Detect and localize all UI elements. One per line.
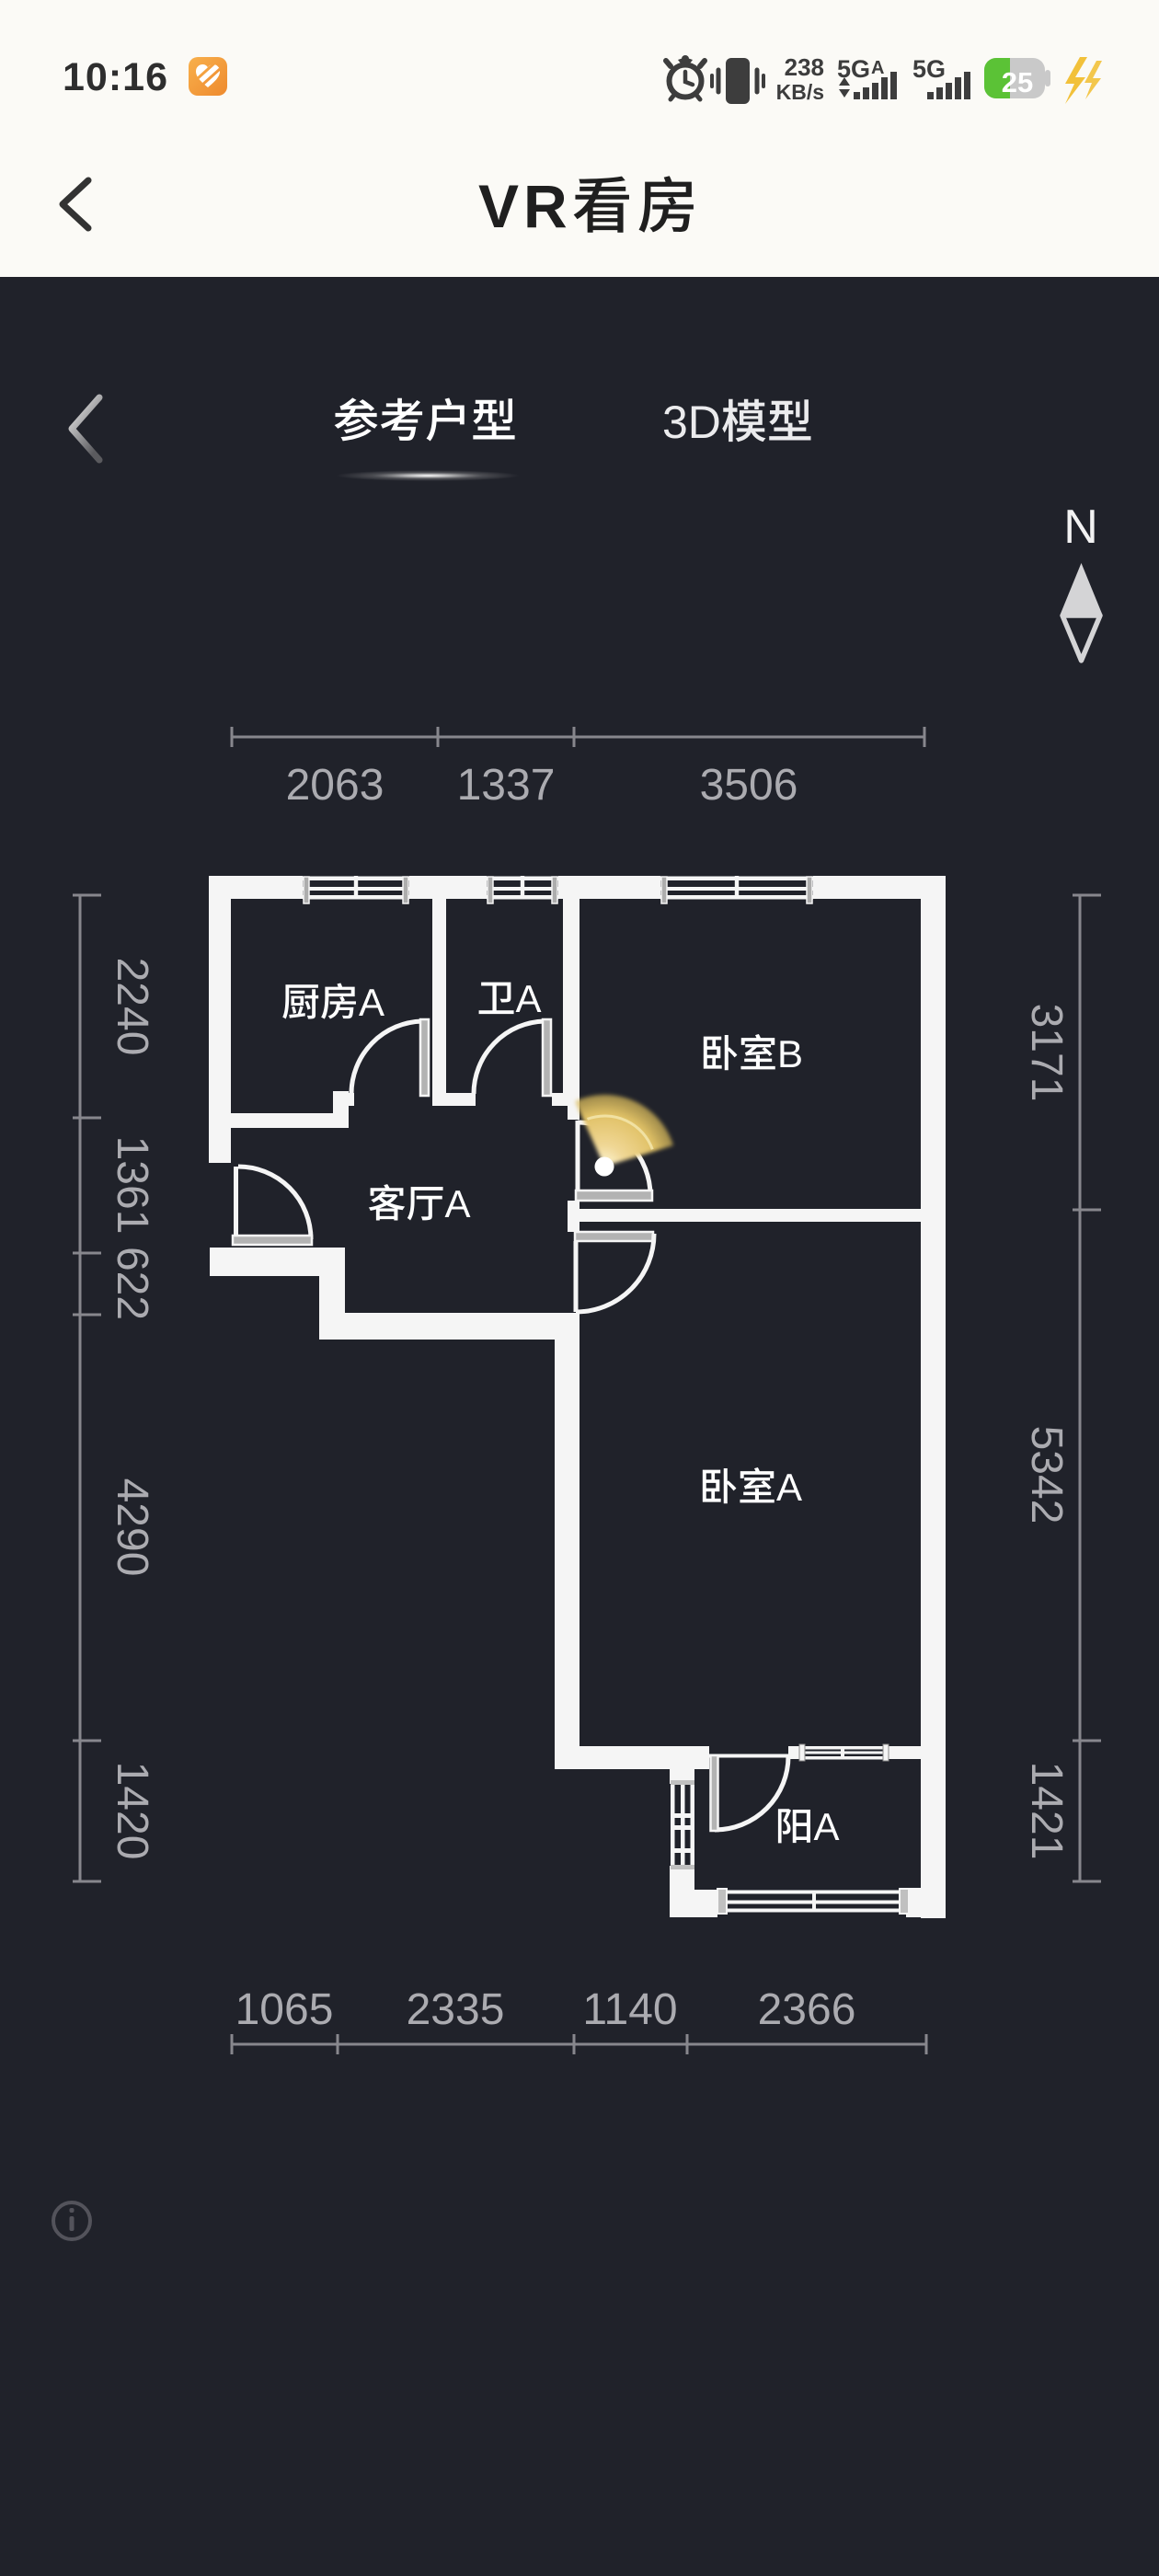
svg-text:4290: 4290 — [108, 1478, 156, 1577]
svg-text:N: N — [1063, 500, 1098, 554]
svg-text:3D: 3D — [662, 397, 721, 448]
svg-text:A: A — [445, 1182, 471, 1225]
svg-text:2335: 2335 — [407, 1985, 505, 2034]
svg-text:1420: 1420 — [108, 1762, 156, 1860]
svg-text:1065: 1065 — [235, 1985, 334, 2034]
svg-text:5342: 5342 — [1022, 1426, 1071, 1524]
svg-text:2240: 2240 — [108, 958, 156, 1056]
svg-text:1140: 1140 — [582, 1985, 677, 2034]
svg-text:2366: 2366 — [758, 1985, 856, 2034]
svg-text:1361: 1361 — [108, 1136, 156, 1235]
svg-text:2063: 2063 — [286, 761, 384, 810]
svg-text:A: A — [516, 977, 542, 1020]
svg-text:B: B — [777, 1032, 803, 1075]
svg-text:A: A — [814, 1805, 840, 1848]
svg-text:A: A — [776, 1466, 802, 1509]
svg-text:3506: 3506 — [700, 761, 798, 810]
svg-text:1421: 1421 — [1022, 1762, 1071, 1860]
svg-text:A: A — [359, 981, 384, 1024]
svg-text:622: 622 — [108, 1247, 156, 1320]
svg-text:3171: 3171 — [1022, 1004, 1071, 1102]
svg-text:1337: 1337 — [457, 761, 556, 810]
